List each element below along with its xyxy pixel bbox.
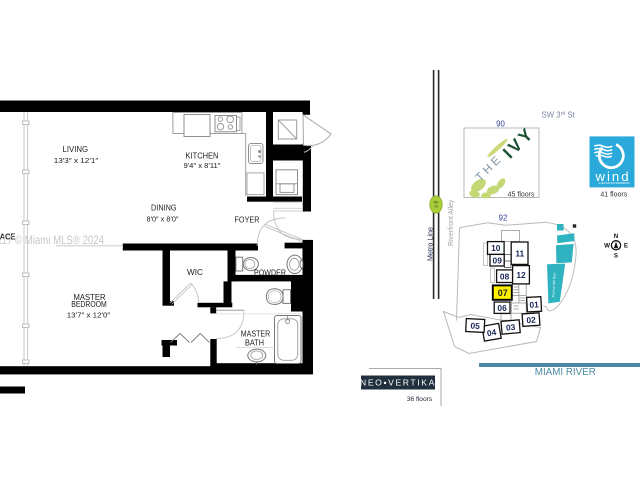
svg-text:NEO▪VERTIKA: NEO▪VERTIKA xyxy=(360,378,436,388)
svg-text:08: 08 xyxy=(500,272,510,282)
svg-text:09: 09 xyxy=(493,256,503,266)
svg-text:WIC: WIC xyxy=(187,268,203,277)
svg-text:Metro Line: Metro Line xyxy=(425,227,434,261)
svg-text:36 floors: 36 floors xyxy=(407,396,433,403)
svg-text:13′3″ x 12′1″: 13′3″ x 12′1″ xyxy=(54,158,99,165)
svg-text:13′7″ x 12′0″: 13′7″ x 12′0″ xyxy=(67,312,111,319)
svg-text:LIVING: LIVING xyxy=(63,145,89,154)
svg-text:06: 06 xyxy=(497,303,507,313)
svg-text:FOYER: FOYER xyxy=(235,215,260,224)
svg-text:MIAMI RIVER: MIAMI RIVER xyxy=(535,367,596,378)
svg-text:Riverfront Alley: Riverfront Alley xyxy=(448,199,455,246)
svg-text:03: 03 xyxy=(506,322,516,333)
svg-text:DINING: DINING xyxy=(151,204,177,213)
svg-text:S: S xyxy=(614,252,618,259)
svg-text:MASTER: MASTER xyxy=(241,330,271,339)
svg-text:POWDER: POWDER xyxy=(254,269,286,278)
svg-text:8′0″ x 8′0″: 8′0″ x 8′0″ xyxy=(147,217,180,224)
svg-text:9′4″ x 8′11″: 9′4″ x 8′11″ xyxy=(184,163,222,170)
svg-text:W: W xyxy=(604,243,610,250)
svg-text:E: E xyxy=(624,243,628,250)
svg-text:05: 05 xyxy=(470,320,480,330)
svg-text:N: N xyxy=(614,233,619,240)
svg-text:01: 01 xyxy=(529,299,539,309)
svg-text:117 © Miami MLS® 2024: 117 © Miami MLS® 2024 xyxy=(0,233,104,247)
svg-text:45 floors: 45 floors xyxy=(508,192,535,199)
svg-text:92: 92 xyxy=(499,213,508,222)
svg-text:41 floors: 41 floors xyxy=(600,191,627,198)
svg-text:10: 10 xyxy=(491,243,501,253)
svg-text:BEDROOM: BEDROOM xyxy=(71,300,107,309)
svg-text:BATH: BATH xyxy=(245,339,264,348)
svg-text:SW 3rd St: SW 3rd St xyxy=(542,111,576,120)
svg-text:90: 90 xyxy=(496,120,505,129)
svg-text:11: 11 xyxy=(515,248,524,258)
svg-text:12: 12 xyxy=(516,270,526,280)
svg-text:02: 02 xyxy=(526,315,536,326)
svg-text:A NEO EPOCH RESIDENCE: A NEO EPOCH RESIDENCE xyxy=(598,182,629,185)
svg-text:07: 07 xyxy=(498,288,508,298)
svg-text:St: St xyxy=(434,205,437,209)
svg-text:KITCHEN: KITCHEN xyxy=(186,152,219,161)
